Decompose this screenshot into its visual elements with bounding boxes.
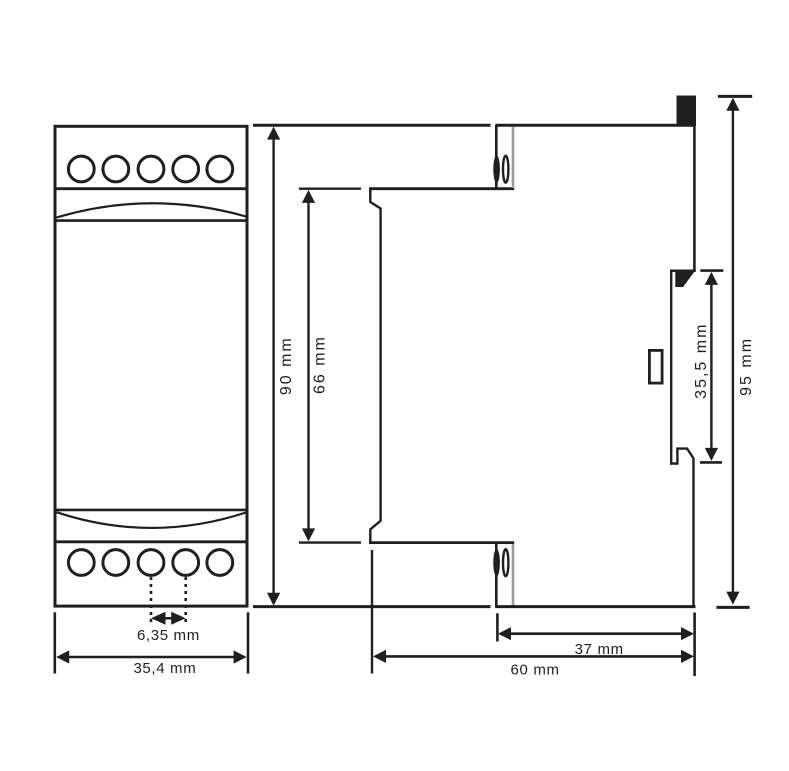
svg-text:6,35 mm: 6,35 mm — [137, 627, 200, 644]
svg-text:95 mm: 95 mm — [738, 337, 755, 396]
svg-text:35,4 mm: 35,4 mm — [133, 660, 196, 677]
svg-text:66 mm: 66 mm — [312, 335, 329, 394]
svg-text:60 mm: 60 mm — [511, 662, 560, 679]
svg-text:90 mm: 90 mm — [278, 336, 295, 395]
svg-text:35,5 mm: 35,5 mm — [693, 323, 710, 399]
